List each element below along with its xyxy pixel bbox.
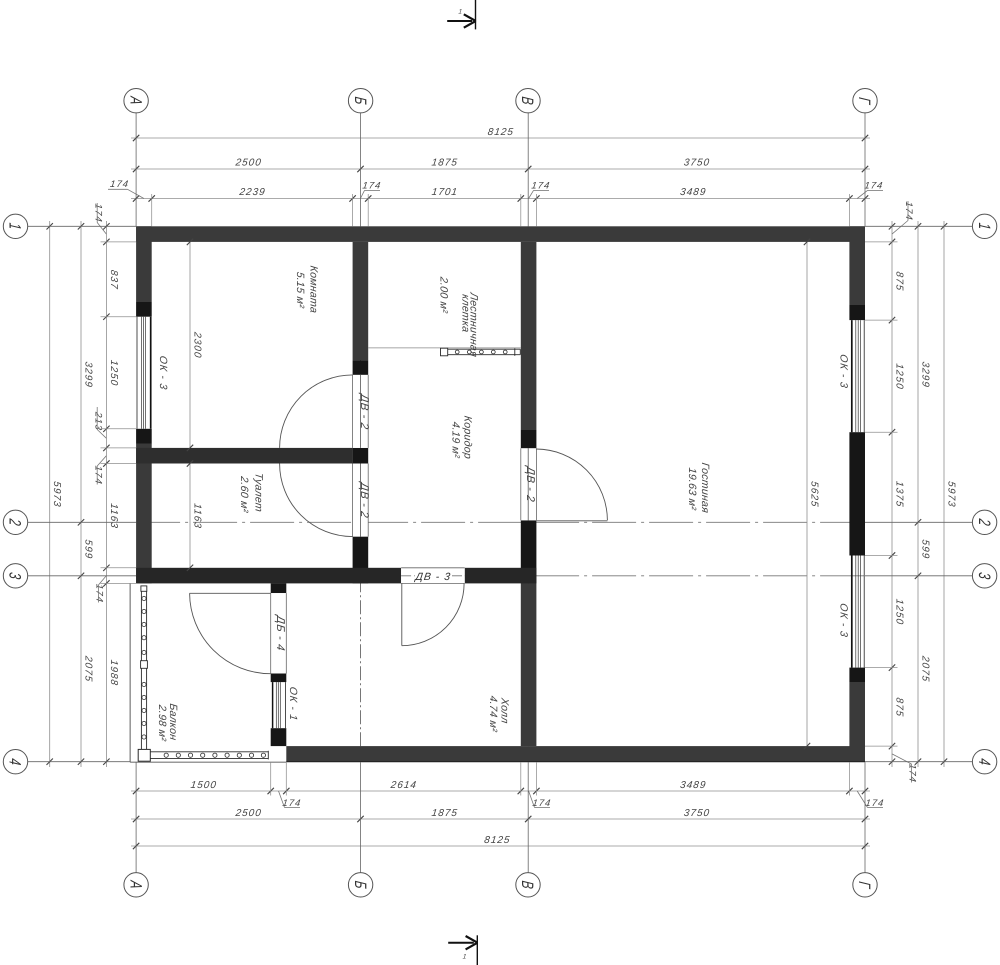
svg-text:3489: 3489: [679, 187, 707, 198]
svg-text:174: 174: [92, 465, 103, 485]
svg-text:5625: 5625: [809, 481, 820, 509]
svg-text:3299: 3299: [920, 361, 931, 389]
svg-text:5973: 5973: [946, 481, 957, 509]
svg-text:1: 1: [462, 954, 467, 961]
svg-text:1375: 1375: [894, 480, 905, 508]
svg-text:ДВ - 2: ДВ - 2: [358, 480, 370, 519]
svg-text:213: 213: [92, 410, 103, 431]
svg-text:174: 174: [531, 180, 551, 191]
svg-text:1701: 1701: [431, 187, 459, 198]
svg-text:2.60 м²: 2.60 м²: [238, 475, 250, 514]
svg-text:1875: 1875: [431, 808, 459, 819]
svg-text:Комната: Комната: [308, 265, 320, 314]
svg-text:2500: 2500: [234, 158, 263, 169]
svg-text:2075: 2075: [920, 654, 931, 683]
svg-text:174: 174: [94, 583, 105, 603]
svg-text:174: 174: [92, 203, 103, 223]
svg-text:2614: 2614: [389, 780, 418, 791]
svg-text:8125: 8125: [487, 127, 515, 138]
svg-text:1163: 1163: [108, 503, 119, 530]
svg-text:19.63 м²: 19.63 м²: [686, 467, 698, 511]
svg-text:1: 1: [458, 9, 463, 16]
svg-text:Гостиная: Гостиная: [699, 462, 711, 514]
svg-text:ДБ - 4: ДБ - 4: [274, 613, 286, 652]
svg-text:ОК - 1: ОК - 1: [287, 686, 299, 722]
svg-text:4.74 м²: 4.74 м²: [487, 695, 499, 733]
svg-text:3750: 3750: [683, 158, 711, 169]
svg-text:3489: 3489: [679, 780, 707, 791]
svg-text:174: 174: [109, 179, 129, 190]
svg-text:174: 174: [903, 201, 914, 221]
svg-text:875: 875: [894, 271, 905, 292]
svg-text:599: 599: [920, 539, 931, 560]
svg-text:1500: 1500: [190, 780, 218, 791]
svg-text:875: 875: [894, 697, 905, 718]
svg-text:599: 599: [83, 539, 94, 560]
svg-text:1988: 1988: [108, 659, 119, 687]
svg-text:2500: 2500: [234, 808, 263, 819]
svg-text:2075: 2075: [83, 654, 94, 683]
svg-text:2239: 2239: [238, 187, 267, 198]
svg-text:Туалет: Туалет: [253, 472, 265, 513]
svg-text:8125: 8125: [484, 835, 512, 846]
svg-text:174: 174: [864, 180, 884, 191]
svg-text:2.00 м²: 2.00 м²: [438, 275, 450, 314]
svg-text:ОК - 3: ОК - 3: [157, 355, 169, 391]
svg-text:4.19 м²: 4.19 м²: [449, 421, 461, 459]
svg-text:174: 174: [362, 180, 382, 191]
svg-text:ДВ - 2: ДВ - 2: [524, 464, 536, 503]
svg-text:3750: 3750: [683, 808, 711, 819]
svg-text:Холл: Холл: [499, 696, 511, 724]
svg-text:1250: 1250: [894, 363, 905, 391]
svg-text:3299: 3299: [83, 361, 94, 389]
svg-text:174: 174: [907, 763, 918, 783]
svg-text:5973: 5973: [51, 481, 62, 509]
svg-text:837: 837: [108, 269, 119, 290]
svg-text:1250: 1250: [894, 598, 905, 626]
svg-text:5.15 м²: 5.15 м²: [294, 271, 306, 309]
svg-text:1250: 1250: [108, 359, 119, 387]
svg-text:ДВ - 2: ДВ - 2: [358, 391, 370, 430]
svg-text:1875: 1875: [431, 158, 459, 169]
svg-text:2.98 м²: 2.98 м²: [156, 703, 168, 742]
svg-text:2300: 2300: [192, 330, 203, 359]
svg-text:клетка: клетка: [459, 294, 471, 333]
svg-text:ДВ - 3: ДВ - 3: [414, 571, 452, 583]
svg-text:ОК - 3: ОК - 3: [838, 603, 850, 639]
svg-text:ОК - 3: ОК - 3: [838, 354, 850, 390]
svg-text:1163: 1163: [192, 503, 203, 530]
svg-text:Коридор: Коридор: [461, 415, 473, 460]
